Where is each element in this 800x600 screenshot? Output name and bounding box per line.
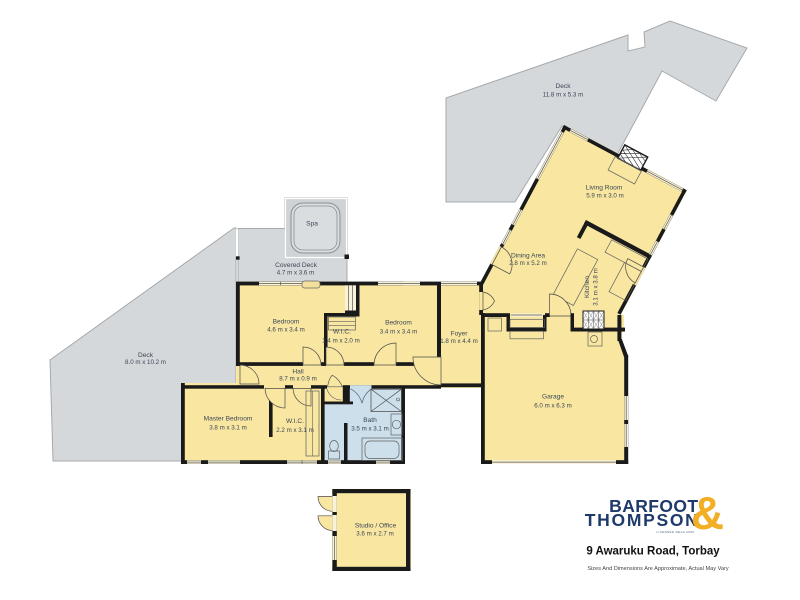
svg-text:9 Awaruku Road, Torbay: 9 Awaruku Road, Torbay <box>586 546 720 558</box>
svg-text:5.9 m x 3.0 m: 5.9 m x 3.0 m <box>586 193 623 200</box>
svg-text:Studio / Office: Studio / Office <box>355 523 397 530</box>
svg-text:Bedroom: Bedroom <box>273 319 300 326</box>
svg-text:1.8 m x 4.4 m: 1.8 m x 4.4 m <box>440 338 477 345</box>
svg-text:Living Room: Living Room <box>586 185 623 192</box>
svg-text:W.I.C.: W.I.C. <box>333 329 351 336</box>
svg-text:3.8 m x 3.1 m: 3.8 m x 3.1 m <box>209 425 246 432</box>
svg-text:Foyer: Foyer <box>451 331 469 338</box>
svg-text:LICENSED REAA 2008: LICENSED REAA 2008 <box>657 530 695 534</box>
svg-text:8.0 m x 10.2 m: 8.0 m x 10.2 m <box>125 359 166 366</box>
svg-text:Bath: Bath <box>363 417 377 424</box>
svg-text:&: & <box>691 487 724 539</box>
svg-text:Sizes And Dimensions Are Appro: Sizes And Dimensions Are Approximate, Ac… <box>587 566 729 572</box>
svg-text:Master Bedroom: Master Bedroom <box>204 416 253 423</box>
svg-text:Bedroom: Bedroom <box>385 320 412 327</box>
svg-text:2.8 m x 5.2 m: 2.8 m x 5.2 m <box>509 260 546 267</box>
svg-text:Hall: Hall <box>292 369 304 376</box>
svg-text:Dining Area: Dining Area <box>511 253 545 260</box>
svg-text:Deck: Deck <box>555 83 571 90</box>
svg-text:6.0 m x 6.3 m: 6.0 m x 6.3 m <box>534 403 571 410</box>
svg-text:Garage: Garage <box>542 394 564 401</box>
svg-text:11.8 m x 5.3 m: 11.8 m x 5.3 m <box>543 92 583 99</box>
svg-text:3.1 m x 3.8 m: 3.1 m x 3.8 m <box>593 268 600 305</box>
svg-text:3.4 m x 3.4 m: 3.4 m x 3.4 m <box>380 329 417 336</box>
svg-text:2.2 m x 3.1 m: 2.2 m x 3.1 m <box>276 427 313 434</box>
svg-text:3.5 m x 3.1 m: 3.5 m x 3.1 m <box>351 426 388 433</box>
svg-text:Spa: Spa <box>306 221 318 228</box>
svg-text:W.I.C.: W.I.C. <box>286 418 304 425</box>
svg-text:4.7 m x 3.6 m: 4.7 m x 3.6 m <box>277 270 314 277</box>
svg-text:Covered Deck: Covered Deck <box>275 262 317 269</box>
svg-text:8.7 m x 0.9 m: 8.7 m x 0.9 m <box>279 376 316 383</box>
svg-text:4.6 m x 3.4 m: 4.6 m x 3.4 m <box>267 327 304 334</box>
svg-text:Kitchen: Kitchen <box>584 276 591 298</box>
svg-text:1.4 m x 2.0 m: 1.4 m x 2.0 m <box>322 338 359 345</box>
svg-text:Deck: Deck <box>138 352 154 359</box>
svg-text:3.6 m x 2.7 m: 3.6 m x 2.7 m <box>356 531 393 538</box>
svg-text:THOMPSON: THOMPSON <box>585 510 700 530</box>
